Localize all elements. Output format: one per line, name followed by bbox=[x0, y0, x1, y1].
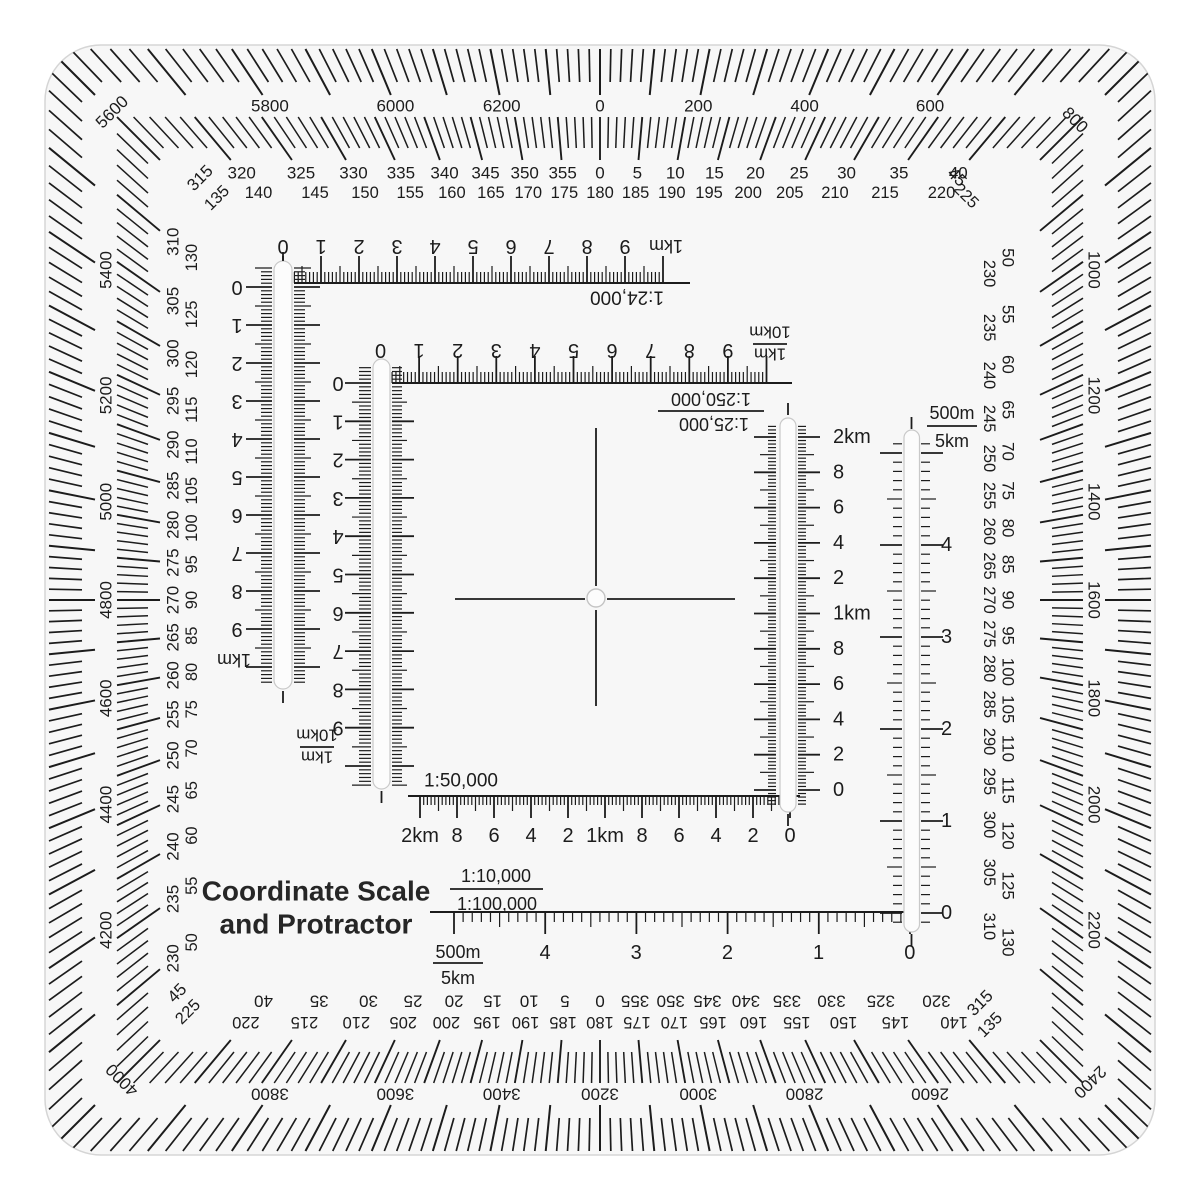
degree-label-red: 255 bbox=[980, 482, 998, 510]
degree-label-red: 175 bbox=[551, 184, 579, 202]
degree-label-black: 110 bbox=[999, 735, 1018, 762]
scale-number: 4 bbox=[539, 942, 550, 964]
degree-label-red: 185 bbox=[622, 184, 650, 202]
degree-label-red: 265 bbox=[980, 552, 998, 580]
degree-label-red: 130 bbox=[183, 244, 201, 272]
degree-label-black: 340 bbox=[430, 164, 458, 183]
scale-number: 1km bbox=[649, 236, 683, 256]
scale-number: 9 bbox=[722, 339, 733, 361]
scale-number: 4 bbox=[525, 825, 536, 847]
degree-label-red: 300 bbox=[980, 811, 998, 839]
degree-label-black: 345 bbox=[471, 164, 499, 183]
mils-label: 6000 bbox=[376, 97, 414, 116]
degree-label-red: 205 bbox=[389, 1013, 417, 1031]
degree-label-black: 280 bbox=[164, 511, 183, 539]
degree-label-red: 85 bbox=[183, 627, 201, 645]
degree-label-red: 270 bbox=[980, 586, 998, 614]
degree-label-red: 305 bbox=[980, 859, 998, 887]
degree-label-red: 180 bbox=[586, 184, 614, 202]
scale-number: 4 bbox=[941, 534, 952, 556]
scale-number: 0 bbox=[784, 825, 795, 847]
mils-label: 1600 bbox=[1085, 581, 1104, 619]
scale-number: 4 bbox=[710, 825, 721, 847]
degree-label-red: 140 bbox=[245, 184, 273, 202]
scale-number: 4 bbox=[231, 428, 242, 450]
scale-number: 9 bbox=[231, 618, 242, 640]
scale-number: 6 bbox=[332, 602, 343, 624]
fraction-denominator: 10km bbox=[749, 323, 791, 342]
degree-label-red: 230 bbox=[980, 260, 998, 288]
scale-number: 1km bbox=[833, 603, 871, 625]
degree-label-black: 255 bbox=[164, 700, 183, 728]
degree-label-red: 285 bbox=[980, 690, 998, 718]
slot-1-25000 bbox=[373, 359, 390, 789]
degree-label-black: 305 bbox=[164, 287, 183, 315]
degree-label-black: 300 bbox=[164, 339, 183, 367]
degree-label-black: 25 bbox=[404, 992, 423, 1011]
scale-label-250000: 1:250,000 bbox=[671, 389, 751, 409]
scale-number: 0 bbox=[904, 942, 915, 964]
mils-label: 0 bbox=[595, 97, 604, 116]
scale-number: 0 bbox=[833, 779, 844, 801]
mils-label: 2600 bbox=[911, 1085, 949, 1104]
scale-number: 6 bbox=[673, 825, 684, 847]
slot-1-24000 bbox=[274, 261, 292, 689]
degree-label-red: 185 bbox=[549, 1013, 577, 1031]
fraction-numerator: 1:10,000 bbox=[461, 866, 531, 886]
degree-label-black: 125 bbox=[999, 871, 1018, 899]
degree-label-black: 310 bbox=[164, 228, 183, 256]
degree-label-red: 215 bbox=[291, 1013, 319, 1031]
scale-number: 3 bbox=[941, 626, 952, 648]
degree-label-black: 75 bbox=[999, 481, 1018, 500]
scale-number: 6 bbox=[488, 825, 499, 847]
mils-label: 5200 bbox=[97, 376, 116, 414]
scale-number: 2 bbox=[562, 825, 573, 847]
mils-label: 3000 bbox=[679, 1085, 717, 1104]
fraction-numerator: 500m bbox=[435, 942, 480, 962]
degree-label-black: 0 bbox=[595, 992, 604, 1011]
degree-label-red: 110 bbox=[183, 438, 201, 464]
degree-label-black: 20 bbox=[445, 992, 464, 1011]
degree-label-black: 120 bbox=[999, 821, 1018, 849]
degree-label-black: 55 bbox=[999, 305, 1018, 324]
mils-label: 2200 bbox=[1085, 911, 1104, 949]
scale-number: 5 bbox=[568, 339, 579, 361]
degree-label-black: 90 bbox=[999, 591, 1018, 610]
scale-number: 7 bbox=[231, 542, 242, 564]
degree-label-red: 295 bbox=[980, 768, 998, 796]
scale-number: 6 bbox=[607, 339, 618, 361]
scale-number: 3 bbox=[631, 942, 642, 964]
degree-label-red: 260 bbox=[980, 518, 998, 546]
degree-label-red: 190 bbox=[512, 1013, 540, 1031]
mils-label: 1800 bbox=[1085, 679, 1104, 717]
scale-number: 2 bbox=[231, 352, 242, 374]
scale-number: 7 bbox=[332, 640, 343, 662]
slot-1-50000 bbox=[780, 418, 796, 812]
degree-label-black: 330 bbox=[817, 992, 845, 1011]
degree-label-red: 160 bbox=[438, 184, 466, 202]
fraction-denominator: 5km bbox=[441, 968, 475, 988]
degree-label-black: 355 bbox=[548, 164, 576, 183]
degree-label-red: 55 bbox=[183, 877, 201, 895]
scale-number: 5 bbox=[231, 466, 242, 488]
degree-label-black: 50 bbox=[999, 248, 1018, 267]
scale-number: 1 bbox=[414, 339, 425, 361]
degree-label-black: 30 bbox=[359, 992, 378, 1011]
scale-number: 2 bbox=[941, 718, 952, 740]
scale-number: 1 bbox=[941, 810, 952, 832]
degree-label-black: 320 bbox=[922, 992, 950, 1011]
scale-number: 6 bbox=[231, 504, 242, 526]
degree-label-black: 30 bbox=[837, 164, 856, 183]
degree-label-black: 345 bbox=[693, 992, 721, 1011]
mils-label: 200 bbox=[684, 97, 712, 116]
degree-label-black: 15 bbox=[483, 992, 502, 1011]
fraction-numerator: 1km bbox=[301, 748, 333, 767]
degree-label-black: 5 bbox=[560, 992, 569, 1011]
degree-label-red: 115 bbox=[183, 397, 201, 423]
degree-label-black: 85 bbox=[999, 555, 1018, 574]
scale-number: 3 bbox=[491, 339, 502, 361]
degree-label-black: 290 bbox=[164, 430, 183, 458]
scale-number: 8 bbox=[332, 678, 343, 700]
degree-label-black: 245 bbox=[164, 785, 183, 813]
degree-label-red: 195 bbox=[695, 184, 723, 202]
mils-label: 1200 bbox=[1085, 376, 1104, 414]
degree-label-red: 180 bbox=[586, 1013, 614, 1031]
scale-number: 5 bbox=[332, 564, 343, 586]
degree-label-black: 285 bbox=[164, 471, 183, 499]
title-line-2: and Protractor bbox=[220, 909, 413, 940]
degree-label-red: 170 bbox=[661, 1013, 689, 1031]
scale-number: 6 bbox=[505, 235, 516, 257]
degree-label-black: 350 bbox=[511, 164, 539, 183]
mils-label: 1400 bbox=[1085, 483, 1104, 521]
scale-number: 5 bbox=[467, 235, 478, 257]
degree-label-red: 120 bbox=[183, 351, 201, 379]
degree-label-black: 105 bbox=[999, 695, 1018, 723]
degree-label-red: 145 bbox=[301, 184, 329, 202]
scale-number: 2 bbox=[353, 235, 364, 257]
scale-number: 2 bbox=[452, 339, 463, 361]
degree-label-black: 100 bbox=[999, 658, 1018, 686]
degree-label-black: 325 bbox=[867, 992, 895, 1011]
scale-number: 8 bbox=[833, 461, 844, 483]
scale-number: 2 bbox=[747, 825, 758, 847]
scale-number: 1km bbox=[586, 825, 624, 847]
mils-label: 3400 bbox=[483, 1085, 521, 1104]
scale-number: 2 bbox=[332, 449, 343, 471]
scale-number: 2 bbox=[722, 942, 733, 964]
scale-number: 1 bbox=[813, 942, 824, 964]
degree-label-red: 235 bbox=[980, 314, 998, 342]
degree-label-red: 155 bbox=[783, 1013, 811, 1031]
degree-label-black: 230 bbox=[164, 944, 183, 972]
degree-label-red: 65 bbox=[183, 781, 201, 799]
degree-label-black: 5 bbox=[633, 164, 642, 183]
degree-label-red: 200 bbox=[734, 184, 762, 202]
degree-label-black: 335 bbox=[387, 164, 415, 183]
degree-label-black: 60 bbox=[999, 355, 1018, 374]
degree-label-black: 95 bbox=[999, 626, 1018, 645]
degree-label-black: 80 bbox=[999, 519, 1018, 538]
degree-label-red: 240 bbox=[980, 362, 998, 390]
degree-label-red: 80 bbox=[183, 663, 201, 681]
degree-label-red: 215 bbox=[871, 184, 899, 202]
scale-number: 9 bbox=[619, 235, 630, 257]
degree-label-red: 160 bbox=[740, 1013, 768, 1031]
scale-number: 1 bbox=[231, 314, 242, 336]
scale-number: 4 bbox=[529, 339, 540, 361]
scale-number: 1km bbox=[217, 650, 251, 670]
degree-label-red: 200 bbox=[433, 1013, 461, 1031]
scale-number: 4 bbox=[332, 525, 343, 547]
degree-label-red: 290 bbox=[980, 728, 998, 756]
scale-number: 4 bbox=[833, 532, 844, 554]
scale-number: 4 bbox=[833, 708, 844, 730]
degree-label-black: 35 bbox=[890, 164, 909, 183]
mils-label: 4600 bbox=[97, 679, 116, 717]
mils-label: 4400 bbox=[97, 786, 116, 824]
mils-label: 5800 bbox=[251, 97, 289, 116]
mils-label: 1000 bbox=[1085, 251, 1104, 289]
center-index-hole bbox=[587, 589, 605, 607]
degree-label-red: 210 bbox=[821, 184, 849, 202]
degree-label-black: 350 bbox=[657, 992, 685, 1011]
degree-label-black: 260 bbox=[164, 661, 183, 689]
degree-label-black: 270 bbox=[164, 586, 183, 614]
scale-number: 8 bbox=[684, 339, 695, 361]
fraction-denominator: 1:100,000 bbox=[457, 894, 537, 914]
scale-1-24000-label: 1:24,000 bbox=[590, 287, 664, 308]
scale-number: 3 bbox=[332, 487, 343, 509]
scale-number: 0 bbox=[332, 372, 343, 394]
scale-number: 8 bbox=[231, 580, 242, 602]
degree-label-red: 105 bbox=[183, 477, 201, 505]
degree-label-red: 250 bbox=[980, 445, 998, 473]
scale-label-25000: 1:25,000 bbox=[679, 414, 749, 434]
degree-label-red: 175 bbox=[623, 1013, 651, 1031]
degree-label-red: 275 bbox=[980, 620, 998, 648]
scale-number: 0 bbox=[941, 902, 952, 924]
mils-label: 2000 bbox=[1085, 786, 1104, 824]
degree-label-red: 220 bbox=[232, 1013, 260, 1031]
degree-label-black: 0 bbox=[595, 164, 604, 183]
scale-number: 7 bbox=[645, 339, 656, 361]
mils-label: 3600 bbox=[376, 1085, 414, 1104]
degree-label-red: 90 bbox=[183, 591, 201, 609]
degree-label-black: 275 bbox=[164, 548, 183, 576]
scale-number: 6 bbox=[833, 673, 844, 695]
degree-label-black: 330 bbox=[339, 164, 367, 183]
degree-label-red: 280 bbox=[980, 655, 998, 683]
degree-label-red: 150 bbox=[830, 1013, 858, 1031]
degree-label-red: 155 bbox=[396, 184, 424, 202]
scale-label-50000: 1:50,000 bbox=[424, 771, 498, 792]
coordinate-scale-and-protractor: 0200400600800100012001400160018002000220… bbox=[0, 0, 1200, 1200]
fraction-denominator: 10km bbox=[296, 726, 338, 745]
degree-label-black: 15 bbox=[705, 164, 724, 183]
scale-number: 7 bbox=[543, 235, 554, 257]
degree-label-black: 340 bbox=[732, 992, 760, 1011]
scale-label-24000: 1:24,000 bbox=[590, 287, 664, 308]
degree-label-black: 25 bbox=[790, 164, 809, 183]
mils-label: 3800 bbox=[251, 1085, 289, 1104]
degree-label-black: 10 bbox=[666, 164, 685, 183]
degree-label-black: 240 bbox=[164, 832, 183, 860]
degree-label-red: 95 bbox=[183, 555, 201, 573]
degree-label-red: 170 bbox=[514, 184, 542, 202]
degree-label-black: 235 bbox=[164, 885, 183, 913]
scale-number: 2km bbox=[401, 825, 439, 847]
degree-label-red: 70 bbox=[183, 739, 201, 757]
mils-label: 600 bbox=[916, 97, 944, 116]
degree-label-red: 145 bbox=[882, 1013, 910, 1031]
degree-label-red: 190 bbox=[658, 184, 686, 202]
degree-label-red: 50 bbox=[183, 933, 201, 951]
fraction-numerator: 500m bbox=[929, 403, 974, 423]
degree-label-black: 325 bbox=[287, 164, 315, 183]
degree-label-black: 295 bbox=[164, 387, 183, 415]
degree-label-black: 35 bbox=[310, 992, 329, 1011]
degree-label-red: 75 bbox=[183, 700, 201, 718]
mils-label: 4800 bbox=[97, 581, 116, 619]
degree-label-black: 130 bbox=[999, 928, 1018, 956]
title-line-1: Coordinate Scale bbox=[202, 876, 431, 907]
mils-label: 3200 bbox=[581, 1085, 619, 1104]
scale-number: 8 bbox=[636, 825, 647, 847]
scale-number: 2 bbox=[833, 567, 844, 589]
mils-label: 2800 bbox=[786, 1085, 824, 1104]
mils-label: 400 bbox=[790, 97, 818, 116]
scale-number: 8 bbox=[581, 235, 592, 257]
degree-label-black: 20 bbox=[746, 164, 765, 183]
degree-label-red: 140 bbox=[940, 1013, 968, 1031]
degree-label-black: 250 bbox=[164, 741, 183, 769]
degree-label-red: 205 bbox=[776, 184, 804, 202]
degree-label-black: 265 bbox=[164, 623, 183, 651]
degree-label-black: 10 bbox=[520, 992, 539, 1011]
degree-label-red: 165 bbox=[699, 1013, 727, 1031]
scale-number: 0 bbox=[231, 276, 242, 298]
mils-label: 4200 bbox=[97, 911, 116, 949]
scale-number: 3 bbox=[231, 390, 242, 412]
degree-label-red: 245 bbox=[980, 405, 998, 433]
degree-label-black: 70 bbox=[999, 442, 1018, 461]
degree-label-red: 150 bbox=[351, 184, 379, 202]
degree-label-red: 195 bbox=[473, 1013, 501, 1031]
scale-number: 2 bbox=[833, 744, 844, 766]
degree-label-black: 40 bbox=[254, 992, 273, 1011]
scale-number: 2km bbox=[833, 426, 871, 448]
scale-number: 8 bbox=[833, 638, 844, 660]
degree-label-black: 335 bbox=[773, 992, 801, 1011]
degree-label-black: 115 bbox=[999, 777, 1018, 804]
degree-label-red: 60 bbox=[183, 826, 201, 844]
mils-label: 6200 bbox=[483, 97, 521, 116]
degree-label-red: 125 bbox=[183, 301, 201, 329]
scale-number: 1 bbox=[315, 235, 326, 257]
protractor-image: 0200400600800100012001400160018002000220… bbox=[0, 0, 1200, 1200]
mils-label: 5400 bbox=[97, 251, 116, 289]
fraction-numerator: 1km bbox=[754, 345, 786, 364]
scale-number: 4 bbox=[429, 235, 440, 257]
scale-number: 6 bbox=[833, 497, 844, 519]
mils-label: 5000 bbox=[97, 483, 116, 521]
degree-label-red: 100 bbox=[183, 514, 201, 542]
degree-label-black: 355 bbox=[621, 992, 649, 1011]
scale-number: 1 bbox=[332, 410, 343, 432]
fraction-denominator: 5km bbox=[935, 431, 969, 451]
degree-label-red: 210 bbox=[343, 1013, 371, 1031]
scale-number: 0 bbox=[375, 339, 386, 361]
scale-number: 8 bbox=[451, 825, 462, 847]
degree-label-red: 310 bbox=[980, 913, 998, 941]
scale-number: 3 bbox=[391, 235, 402, 257]
degree-label-black: 320 bbox=[228, 164, 256, 183]
degree-label-red: 165 bbox=[477, 184, 505, 202]
degree-label-black: 65 bbox=[999, 400, 1018, 419]
slot-500m-5km bbox=[904, 430, 920, 932]
